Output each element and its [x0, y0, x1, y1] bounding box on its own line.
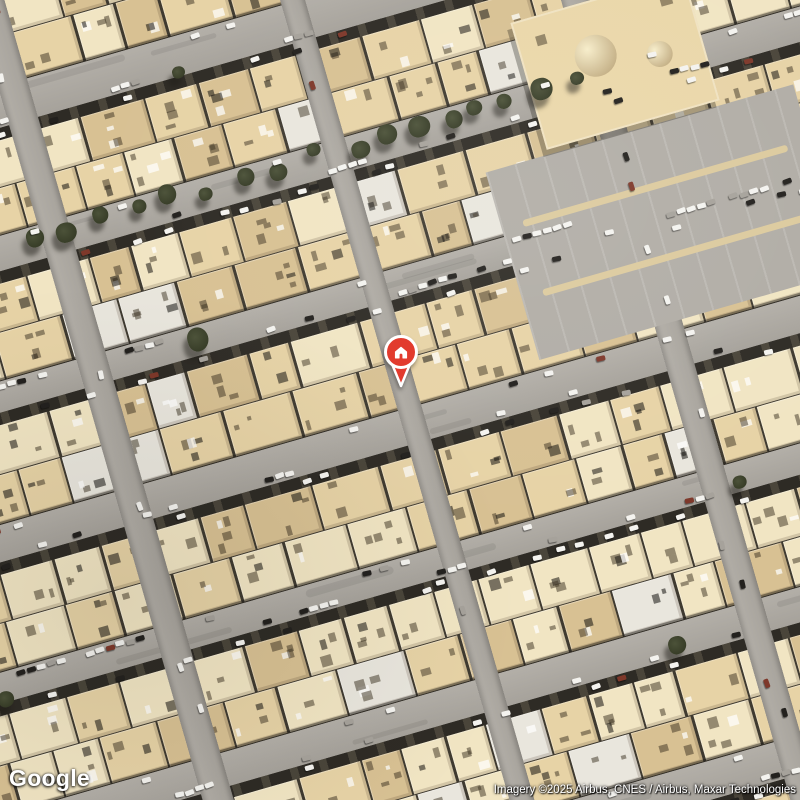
satellite-feature — [168, 399, 178, 408]
satellite-feature — [192, 138, 203, 147]
satellite-feature — [379, 41, 388, 51]
satellite-feature — [74, 409, 82, 416]
satellite-imagery-layer — [0, 0, 800, 800]
satellite-feature — [365, 761, 374, 772]
satellite-feature — [621, 755, 627, 761]
satellite-feature — [107, 752, 113, 761]
satellite-feature — [253, 563, 263, 572]
satellite-feature — [98, 625, 110, 637]
satellite-feature — [382, 201, 393, 210]
satellite-feature — [658, 743, 669, 753]
satellite-feature — [660, 0, 674, 7]
satellite-feature — [259, 715, 269, 724]
satellite-feature — [445, 357, 453, 368]
satellite-feature — [66, 0, 76, 6]
satellite-feature — [108, 553, 121, 566]
satellite-feature — [522, 145, 788, 228]
satellite-feature — [455, 304, 464, 316]
satellite-feature — [25, 61, 35, 70]
satellite-feature — [422, 354, 434, 363]
google-logo[interactable]: Google — [9, 765, 90, 792]
satellite-feature — [311, 251, 319, 261]
satellite-feature — [753, 516, 762, 525]
satellite-feature — [346, 777, 355, 787]
satellite-feature — [27, 482, 35, 488]
satellite-feature — [771, 70, 780, 80]
satellite-feature — [314, 262, 326, 272]
satellite-feature — [107, 125, 115, 131]
satellite-feature — [160, 151, 171, 160]
satellite-feature — [640, 685, 651, 693]
satellite-feature — [104, 112, 115, 119]
satellite-feature — [265, 75, 273, 82]
satellite-feature — [212, 7, 225, 18]
satellite-feature — [167, 109, 179, 119]
satellite-feature — [376, 628, 385, 638]
satellite-feature — [700, 574, 709, 582]
satellite-feature — [256, 703, 264, 710]
satellite-feature — [492, 365, 504, 377]
satellite-feature — [3, 489, 13, 499]
satellite-feature — [591, 756, 599, 763]
satellite-feature — [529, 765, 541, 775]
satellite-feature — [555, 581, 567, 592]
satellite-feature — [434, 304, 441, 311]
satellite-feature — [633, 419, 642, 431]
satellite-feature — [25, 333, 34, 340]
satellite-feature — [277, 225, 285, 231]
satellite-feature — [305, 420, 312, 430]
satellite-feature — [394, 771, 402, 778]
satellite-feature — [319, 639, 328, 650]
satellite-feature — [296, 713, 303, 720]
satellite-feature — [670, 723, 681, 733]
satellite-feature — [142, 743, 152, 754]
satellite-feature — [370, 675, 381, 684]
satellite-feature — [549, 625, 557, 631]
satellite-feature — [728, 673, 739, 685]
satellite-feature — [432, 747, 441, 758]
satellite-feature — [373, 533, 384, 543]
satellite-feature — [35, 329, 45, 337]
satellite-feature — [161, 291, 168, 300]
satellite-feature — [151, 246, 157, 253]
satellite-feature — [67, 439, 77, 446]
satellite-feature — [451, 60, 462, 70]
satellite-feature — [263, 351, 272, 361]
satellite-feature — [508, 72, 516, 79]
satellite-feature — [720, 739, 732, 749]
satellite-feature — [10, 502, 19, 512]
satellite-feature — [384, 520, 393, 529]
satellite-feature — [519, 344, 531, 353]
satellite-feature — [438, 180, 448, 189]
satellite-feature — [684, 744, 694, 756]
satellite-feature — [147, 163, 160, 174]
satellite-feature — [323, 675, 332, 682]
satellite-feature — [654, 468, 663, 476]
satellite-feature — [339, 387, 345, 393]
satellite-feature — [526, 641, 535, 650]
satellite-feature — [290, 281, 297, 288]
satellite-feature — [378, 395, 387, 406]
satellite-feature — [335, 506, 348, 519]
satellite-feature — [95, 719, 104, 731]
satellite-feature — [246, 554, 255, 560]
satellite-feature — [37, 479, 46, 486]
satellite-feature — [298, 105, 310, 117]
satellite-feature — [470, 471, 479, 477]
satellite-feature — [8, 423, 18, 432]
satellite-feature — [247, 571, 259, 583]
satellite-feature — [215, 289, 224, 300]
satellite-feature — [298, 552, 305, 563]
satellite-feature — [216, 520, 223, 529]
satellite-feature — [166, 303, 178, 313]
satellite-feature — [0, 293, 8, 302]
satellite-feature — [113, 137, 124, 148]
satellite-feature — [190, 452, 199, 462]
satellite-feature — [441, 234, 450, 243]
satellite-feature — [449, 648, 455, 655]
satellite-feature — [776, 568, 784, 575]
satellite-feature — [267, 130, 274, 137]
satellite-feature — [191, 252, 203, 265]
satellite-feature — [33, 589, 44, 600]
satellite-feature — [231, 650, 242, 660]
satellite-feature — [146, 263, 154, 274]
satellite-feature — [328, 795, 338, 800]
satellite-feature — [636, 409, 641, 414]
satellite-feature — [94, 478, 106, 489]
satellite-feature — [361, 690, 373, 701]
satellite-feature — [465, 83, 476, 91]
satellite-feature — [463, 353, 469, 361]
satellite-feature — [263, 222, 271, 229]
satellite-feature — [445, 449, 452, 460]
satellite-feature — [82, 722, 88, 729]
satellite-feature — [680, 580, 689, 587]
satellite-feature — [498, 61, 507, 69]
satellite-feature — [130, 154, 137, 161]
satellite-feature — [256, 233, 267, 244]
satellite-feature — [363, 89, 372, 101]
satellite-feature — [707, 716, 720, 729]
satellite-feature — [708, 740, 717, 748]
satellite-feature — [478, 760, 490, 770]
satellite-feature — [448, 223, 457, 234]
satellite-feature — [229, 392, 239, 400]
satellite-feature — [104, 16, 112, 27]
satellite-feature — [113, 165, 123, 173]
satellite-feature — [592, 467, 603, 475]
satellite-feature — [234, 425, 240, 431]
satellite-feature — [222, 515, 231, 527]
satellite-feature — [247, 416, 252, 421]
satellite-feature — [594, 695, 605, 707]
satellite-feature — [47, 704, 58, 713]
satellite-feature — [701, 587, 708, 597]
satellite-feature — [165, 123, 176, 130]
satellite-feature — [328, 632, 337, 643]
satellite-feature — [559, 736, 569, 743]
satellite-feature — [93, 163, 105, 171]
satellite-feature — [400, 56, 410, 67]
satellite-feature — [367, 393, 378, 402]
satellite-feature — [396, 537, 403, 545]
satellite-feature — [137, 177, 145, 187]
satellite-feature — [330, 346, 339, 358]
satellite-feature — [727, 714, 740, 727]
satellite-feature — [526, 724, 537, 734]
satellite-feature — [201, 304, 209, 312]
satellite-feature — [698, 5, 709, 15]
satellite-feature — [236, 728, 242, 737]
satellite-feature — [136, 398, 145, 405]
satellite-feature — [122, 593, 130, 601]
satellite-feature — [18, 296, 31, 309]
satellite-feature — [680, 447, 687, 457]
satellite-feature — [180, 89, 192, 99]
satellite-feature — [207, 155, 220, 166]
satellite-feature — [731, 380, 740, 392]
satellite-feature — [5, 146, 12, 158]
satellite-feature — [591, 477, 603, 486]
satellite-feature — [436, 164, 446, 176]
satellite-feature — [327, 481, 337, 489]
satellite-feature — [301, 497, 309, 503]
satellite-feature — [40, 52, 51, 63]
satellite-feature — [478, 8, 490, 19]
satellite-feature — [222, 246, 229, 256]
satellite-feature — [496, 288, 507, 296]
satellite-feature — [38, 623, 46, 633]
satellite-feature — [218, 543, 227, 554]
satellite-feature — [79, 481, 86, 489]
satellite-feature — [270, 641, 282, 653]
satellite-feature — [185, 0, 195, 6]
satellite-feature — [650, 681, 662, 692]
satellite-feature — [594, 431, 602, 442]
satellite-feature — [754, 552, 761, 558]
satellite-feature — [533, 625, 539, 634]
satellite-feature — [763, 506, 775, 517]
satellite-feature — [409, 622, 418, 632]
satellite-feature — [0, 306, 8, 314]
satellite-feature — [794, 414, 800, 425]
satellite-feature — [568, 424, 576, 435]
satellite-feature — [777, 515, 789, 528]
satellite-feature — [661, 589, 666, 594]
satellite-feature — [581, 730, 591, 737]
satellite-feature — [243, 139, 253, 146]
satellite-feature — [82, 746, 92, 757]
satellite-feature — [222, 531, 232, 541]
satellite-feature — [48, 588, 55, 598]
satellite-feature — [554, 770, 560, 776]
satellite-feature — [50, 721, 59, 732]
pin-graphic — [379, 333, 423, 391]
satellite-feature — [425, 77, 433, 85]
satellite-feature — [416, 91, 424, 98]
satellite-feature — [112, 740, 124, 752]
satellite-feature — [358, 622, 369, 632]
satellite-feature — [216, 105, 226, 116]
satellite-feature — [286, 272, 296, 279]
satellite-feature — [0, 657, 7, 665]
satellite-feature — [647, 453, 659, 461]
satellite-feature — [15, 284, 26, 293]
satellite-feature — [620, 407, 632, 418]
satellite-feature — [35, 446, 42, 452]
satellite-feature — [419, 765, 426, 771]
satellite-feature — [320, 654, 333, 667]
satellite-feature — [385, 765, 391, 770]
satellite-feature — [185, 537, 198, 550]
satellite-feature — [212, 374, 224, 385]
satellite-feature — [62, 183, 69, 190]
satellite-feature — [488, 578, 501, 591]
satellite-feature — [441, 328, 451, 338]
satellite-feature — [685, 696, 693, 703]
satellite-feature — [206, 691, 212, 700]
satellite-feature — [332, 249, 343, 260]
satellite-feature — [403, 466, 414, 478]
satellite-feature — [72, 417, 84, 427]
satellite-feature — [488, 291, 499, 301]
satellite-feature — [150, 256, 157, 262]
satellite-feature — [144, 704, 152, 714]
satellite-feature — [745, 377, 752, 386]
satellite-feature — [334, 399, 347, 411]
satellite-feature — [76, 564, 83, 573]
satellite-feature — [566, 488, 577, 496]
satellite-feature — [32, 348, 41, 360]
satellite-feature — [465, 64, 471, 73]
satellite-map-canvas[interactable]: Google Imagery ©2025 Airbus, CNES / Airb… — [0, 0, 800, 800]
satellite-feature — [302, 359, 311, 367]
satellite-feature — [0, 509, 3, 517]
satellite-feature — [503, 576, 513, 584]
satellite-feature — [490, 457, 500, 465]
satellite-feature — [724, 435, 736, 448]
satellite-feature — [394, 231, 405, 240]
satellite-feature — [287, 648, 296, 659]
satellite-feature — [792, 557, 800, 564]
satellite-feature — [303, 700, 315, 709]
satellite-feature — [462, 750, 472, 758]
satellite-feature — [472, 213, 478, 218]
satellite-feature — [283, 263, 290, 270]
satellite-feature — [217, 676, 225, 683]
satellite-feature — [217, 385, 227, 397]
satellite-feature — [733, 88, 741, 99]
satellite-feature — [477, 365, 488, 376]
satellite-feature — [560, 712, 567, 718]
satellite-feature — [133, 309, 142, 320]
satellite-feature — [682, 732, 688, 739]
satellite-feature — [773, 413, 780, 419]
imagery-attribution: Imagery ©2025 Airbus, CNES / Airbus, Max… — [494, 784, 796, 796]
satellite-feature — [9, 439, 18, 449]
satellite-feature — [286, 525, 293, 536]
satellite-feature — [433, 797, 444, 800]
satellite-feature — [535, 34, 547, 46]
satellite-feature — [2, 793, 13, 800]
satellite-feature — [583, 617, 593, 627]
satellite-feature — [478, 785, 487, 797]
satellite-feature — [276, 371, 289, 383]
satellite-feature — [580, 440, 589, 448]
satellite-feature — [364, 536, 373, 545]
satellite-feature — [660, 708, 667, 716]
satellite-feature — [651, 593, 661, 604]
satellite-feature — [495, 512, 505, 519]
satellite-feature — [790, 515, 799, 522]
satellite-feature — [322, 196, 329, 203]
satellite-feature — [275, 271, 284, 280]
satellite-feature — [522, 589, 535, 601]
satellite-feature — [25, 625, 36, 636]
satellite-feature — [540, 3, 548, 12]
satellite-feature — [747, 72, 759, 81]
satellite-feature — [402, 633, 409, 641]
satellite-feature — [344, 89, 357, 101]
satellite-feature — [459, 25, 471, 35]
satellite-feature — [102, 178, 111, 190]
satellite-feature — [668, 554, 678, 565]
satellite-feature — [71, 133, 83, 142]
satellite-feature — [124, 402, 136, 415]
satellite-feature — [110, 274, 121, 287]
car — [97, 370, 103, 380]
satellite-feature — [381, 781, 389, 787]
satellite-feature — [786, 66, 793, 74]
satellite-feature — [420, 667, 432, 677]
property-pin-marker[interactable] — [379, 333, 423, 391]
